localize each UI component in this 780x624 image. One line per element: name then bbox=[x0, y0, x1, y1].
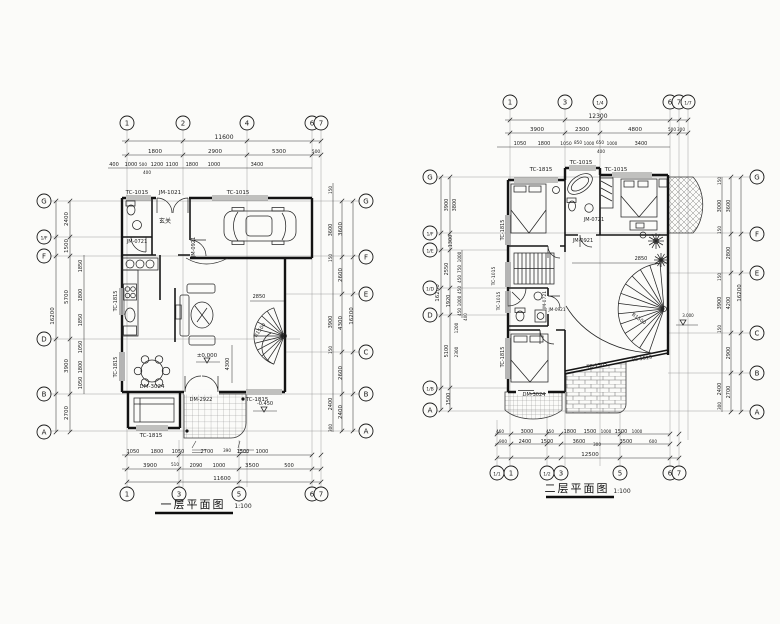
dim-label: TC-1015 bbox=[226, 190, 250, 196]
dim-label: DM-3024 bbox=[140, 384, 165, 390]
grid-bubble-label: G bbox=[754, 173, 759, 181]
dim-label: 1050 bbox=[127, 449, 140, 455]
dim-label: 3900 bbox=[444, 199, 450, 212]
dim-label: 3400 bbox=[635, 141, 648, 147]
nightstand bbox=[659, 179, 667, 187]
dim-label: 2400 bbox=[717, 383, 723, 396]
dim-label: 150 bbox=[717, 325, 722, 333]
dim-label: 1300 bbox=[448, 235, 454, 248]
grid-bubble-label: 2 bbox=[181, 119, 185, 127]
spiral-stair-2 bbox=[618, 263, 666, 353]
cad-sheet: 1160018002900530050040010005001200110018… bbox=[0, 0, 780, 624]
dim-label: 2550 bbox=[444, 263, 450, 276]
dim-label: 1800 bbox=[564, 429, 577, 435]
dim-label: 2300 bbox=[575, 127, 589, 133]
dim-label: 1500 bbox=[446, 393, 452, 406]
dim-label: DM-2922 bbox=[190, 397, 213, 403]
grid-bubble-label: E bbox=[755, 269, 759, 277]
sink bbox=[133, 221, 142, 230]
floor-plan-drawing: 1160018002900530050040010005001200110018… bbox=[0, 0, 780, 624]
grid-bubble-label: A bbox=[42, 428, 47, 436]
dim-label: 300 bbox=[328, 424, 333, 432]
plan2-grid-bubbles: 131/4671/71/111/23567G1/F1/E1/DD1/BAGFEC… bbox=[423, 95, 764, 480]
grid-bubble-label: B bbox=[42, 390, 47, 398]
dim-label: 1800 bbox=[78, 361, 84, 374]
dim-label: 2850 bbox=[253, 294, 266, 300]
dim-label: 3500 bbox=[245, 463, 259, 469]
grid-bubble-label: 7 bbox=[319, 490, 323, 498]
dim-label: TC-1015 bbox=[496, 292, 502, 312]
grid-bubble-label: G bbox=[363, 197, 368, 205]
grid-bubble-label: 1 bbox=[508, 98, 512, 106]
bathtub bbox=[564, 169, 596, 198]
dim-label: 750 bbox=[457, 265, 462, 273]
dim-label: 4300 bbox=[338, 316, 344, 330]
grid-bubble-label: G bbox=[41, 197, 46, 205]
dim-label: 1050 bbox=[514, 141, 527, 147]
dim-label: 3900 bbox=[530, 127, 544, 133]
dim-label: 11600 bbox=[214, 134, 233, 141]
dim-label: JM-0921 bbox=[547, 307, 565, 312]
dim-label: 3600 bbox=[328, 224, 334, 237]
dim-label: TC-1815 bbox=[529, 167, 553, 173]
dim-label: 5100 bbox=[444, 345, 450, 358]
grid-bubble-label: 5 bbox=[618, 469, 622, 477]
window-tc1815-2 bbox=[514, 177, 558, 182]
dim-label: 2700 bbox=[726, 386, 732, 399]
plan2-title: 二层平面图 bbox=[545, 482, 610, 495]
dim-label: 1500 bbox=[64, 239, 70, 253]
dim-label: 1000 bbox=[125, 162, 138, 168]
dim-label: 1000 bbox=[607, 141, 618, 146]
dim-label: 150 bbox=[328, 186, 333, 194]
dim-label: TC-1815 bbox=[113, 291, 119, 313]
plan1-scale: 1:100 bbox=[234, 503, 251, 510]
dim-label: JM-1021 bbox=[158, 190, 181, 196]
dim-label: 4800 bbox=[628, 127, 642, 133]
dim-label: 1100 bbox=[166, 162, 179, 168]
dim-label: 玄关 bbox=[159, 217, 171, 225]
dim-label: JM-0721 bbox=[583, 217, 604, 223]
dim-label: 1000 bbox=[213, 463, 226, 469]
dim-label: 3900 bbox=[328, 316, 334, 329]
dim-label: 2600 bbox=[338, 268, 344, 282]
second-floor-plan: 1230039002300480050030010501800105085010… bbox=[423, 95, 764, 497]
first-floor-plan: 1160018002900530050040010005001200110018… bbox=[37, 116, 373, 513]
porch-column bbox=[241, 397, 244, 400]
dim-label: 16200 bbox=[737, 284, 743, 302]
car bbox=[224, 208, 296, 245]
toilet-2 bbox=[567, 198, 576, 211]
dim-label: 850 bbox=[574, 140, 582, 145]
plan2-scale: 1:100 bbox=[613, 488, 630, 495]
dim-label: 1920 bbox=[446, 295, 452, 308]
dim-label: 2700 bbox=[201, 449, 214, 455]
dim-label: 1800 bbox=[186, 162, 199, 168]
window-tc1815 bbox=[246, 389, 282, 394]
grid-bubble-label: A bbox=[755, 408, 760, 416]
plan1-grid-bubbles: 1246713567G1/FFDBAGFECBA bbox=[37, 116, 373, 501]
toilet bbox=[126, 201, 135, 215]
dim-label: 3000 bbox=[521, 429, 534, 435]
dim-label: 3400 bbox=[251, 162, 264, 168]
sink-2 bbox=[585, 204, 593, 212]
dim-label: 1000 bbox=[584, 141, 595, 146]
dim-label: 2900 bbox=[208, 149, 222, 155]
plan1-title: 一层平面图 bbox=[161, 498, 226, 511]
dim-label: 150 bbox=[717, 177, 722, 185]
washer bbox=[535, 310, 546, 322]
dim-label: 450 bbox=[457, 286, 462, 294]
dim-label: 400 bbox=[143, 170, 151, 175]
dim-label: -0.450 bbox=[257, 401, 273, 407]
dim-label: 1050 bbox=[78, 341, 84, 354]
grid-bubble-label: D bbox=[41, 335, 46, 343]
dim-label: 1200 bbox=[454, 322, 459, 333]
dim-label: 460 bbox=[496, 429, 504, 434]
grid-bubble-label: B bbox=[364, 390, 369, 398]
dim-label: TC-1015 bbox=[604, 167, 628, 173]
grid-bubble-label: 1/7 bbox=[684, 100, 691, 106]
dim-label: 300 bbox=[593, 442, 601, 447]
dim-label: 500 bbox=[284, 463, 294, 469]
side-table bbox=[553, 187, 560, 194]
dim-label: 5700 bbox=[64, 290, 70, 304]
dim-label: 1000 bbox=[601, 429, 612, 434]
dim-label: 400 bbox=[597, 149, 605, 154]
grid-bubble-label: 1/2 bbox=[543, 471, 550, 477]
shower bbox=[508, 288, 526, 306]
dim-label: 150 bbox=[717, 226, 722, 234]
dim-label: 1500 bbox=[584, 429, 597, 435]
grid-bubble-label: F bbox=[42, 252, 46, 260]
dim-label: 1050 bbox=[172, 449, 185, 455]
dim-label: 3900 bbox=[717, 297, 723, 310]
window-tc1815-left2 bbox=[119, 352, 124, 381]
dim-label: 400 bbox=[463, 313, 468, 321]
dim-label: TC-1815 bbox=[500, 347, 506, 369]
grid-bubble-label: 7 bbox=[319, 119, 323, 127]
grid-bubble-label: 1/4 bbox=[596, 100, 603, 106]
window-tc1015-left1 bbox=[505, 262, 510, 287]
dim-label: 12500 bbox=[581, 452, 599, 458]
dim-label: R1500 bbox=[630, 312, 647, 326]
toilet-3 bbox=[515, 308, 525, 321]
dim-label: 900 bbox=[499, 439, 507, 444]
window-tc1015-bath bbox=[569, 165, 596, 170]
dim-label: 2600 bbox=[338, 366, 344, 380]
dim-label: 4200 bbox=[726, 297, 732, 310]
balcony-top-right bbox=[668, 177, 703, 233]
dim-label: 150 bbox=[328, 346, 333, 354]
dim-label: 3.000 bbox=[682, 313, 694, 318]
dim-label: 300 bbox=[717, 402, 722, 410]
dim-label: 16200 bbox=[349, 307, 355, 325]
dim-label: 3800 bbox=[452, 199, 458, 212]
dim-label: TC-1815 bbox=[139, 433, 163, 439]
grid-bubble-label: 1/F bbox=[40, 235, 47, 241]
grid-bubble-label: 1/B bbox=[426, 386, 434, 392]
sofa-set bbox=[176, 284, 215, 345]
grid-bubble-label: 1 bbox=[509, 469, 513, 477]
dim-label: 16200 bbox=[50, 307, 56, 325]
dim-label: 2300 bbox=[454, 346, 459, 357]
dim-label: TC-1015 bbox=[125, 190, 149, 196]
grid-bubble-label: 3 bbox=[563, 98, 567, 106]
dim-label: 600 bbox=[649, 439, 657, 444]
dim-label: 150 bbox=[328, 254, 333, 262]
window-tc1815-room bbox=[136, 425, 168, 430]
dim-label: 11600 bbox=[213, 476, 231, 482]
dim-label: 5300 bbox=[272, 149, 286, 155]
dim-label: 2090 bbox=[190, 463, 203, 469]
dim-label: 3000 bbox=[717, 200, 723, 213]
kitchen-counter bbox=[122, 258, 158, 336]
bed-room1 bbox=[134, 398, 174, 422]
window-tc1015-bed2 bbox=[612, 172, 652, 177]
dim-label: JM-0921 bbox=[191, 237, 197, 258]
dim-label: 2700 bbox=[64, 406, 70, 420]
dim-label: 1800 bbox=[538, 141, 551, 147]
grid-bubble-label: B bbox=[755, 369, 760, 377]
dim-label: 1000 bbox=[457, 295, 462, 306]
dim-label: 3900 bbox=[143, 463, 157, 469]
bed-room3 bbox=[511, 334, 548, 382]
dim-label: TC-1015 bbox=[491, 267, 497, 287]
dim-label: JM-0921 bbox=[572, 238, 593, 244]
dim-label: 450 bbox=[457, 308, 462, 316]
grid-bubble-label: 5 bbox=[237, 490, 241, 498]
dim-label: 500 bbox=[139, 162, 147, 167]
dim-label: 3600 bbox=[726, 200, 732, 213]
dim-label: 1850 bbox=[78, 314, 84, 327]
dim-label: 2400 bbox=[519, 439, 532, 445]
dim-label: 650 bbox=[596, 140, 604, 145]
grid-bubble-label: 7 bbox=[677, 469, 681, 477]
dim-label: DM-3024 bbox=[523, 392, 546, 398]
dim-label: 510 bbox=[171, 462, 179, 467]
dim-label: TC-1815 bbox=[113, 357, 119, 379]
dim-label: 12300 bbox=[588, 113, 607, 120]
dim-label: 1500 bbox=[615, 429, 628, 435]
grid-bubble-label: D bbox=[427, 311, 432, 319]
dim-label: 1800 bbox=[148, 149, 162, 155]
dim-label: 2900 bbox=[726, 347, 732, 360]
grid-bubble-label: 1 bbox=[125, 119, 129, 127]
sink-3 bbox=[534, 292, 542, 300]
bed-master bbox=[511, 184, 546, 233]
dim-label: 450 bbox=[546, 429, 554, 434]
dining-table bbox=[134, 356, 170, 387]
grid-bubble-label: A bbox=[428, 406, 433, 414]
grid-bubble-label: 1/F bbox=[426, 231, 433, 237]
grid-bubble-label: 3 bbox=[559, 469, 563, 477]
dim-label: 390 bbox=[223, 448, 231, 453]
dim-label: JM-0721 bbox=[542, 291, 548, 310]
dim-label: 1000 bbox=[256, 449, 269, 455]
dim-label: 1850 bbox=[78, 260, 84, 273]
dim-label: 3600 bbox=[573, 439, 586, 445]
dim-label: 2850 bbox=[635, 256, 648, 262]
furniture-2 bbox=[508, 169, 686, 382]
grid-bubble-label: 1/1 bbox=[493, 471, 500, 477]
dim-label: 1050 bbox=[560, 141, 572, 147]
dim-label: 2400 bbox=[328, 398, 334, 411]
window-tc1015 bbox=[126, 195, 151, 200]
dim-label: JM-0721 bbox=[126, 239, 147, 245]
dim-label: 150 bbox=[717, 273, 722, 281]
plant-icon bbox=[654, 253, 668, 267]
dim-label: TC-1815 bbox=[500, 220, 506, 242]
grid-bubble-label: F bbox=[755, 230, 759, 238]
grid-bubble-label: E bbox=[364, 290, 368, 298]
grid-bubble-label: 1/E bbox=[426, 248, 433, 254]
grid-bubble-label: 1/D bbox=[426, 286, 434, 292]
porch-column bbox=[185, 429, 188, 432]
window-tc1015-garage bbox=[212, 195, 268, 200]
dim-label: 2400 bbox=[338, 405, 344, 419]
window-tc1815-stair bbox=[505, 215, 510, 245]
grid-bubble-label: 4 bbox=[245, 119, 250, 127]
dim-label: 2400 bbox=[64, 212, 70, 226]
grid-bubble-label: G bbox=[427, 173, 432, 181]
dim-label: 400 bbox=[109, 162, 119, 168]
grid-bubble-label: F bbox=[364, 253, 368, 261]
dim-label: TC-1515 bbox=[630, 355, 652, 364]
dim-label: 1050 bbox=[78, 377, 84, 390]
bed-guest bbox=[621, 179, 657, 217]
dim-label: 1000 bbox=[208, 162, 221, 168]
dim-label: ±0.000 bbox=[197, 353, 218, 359]
window-tc1815-bed3 bbox=[505, 338, 510, 379]
dim-label: 4300 bbox=[225, 358, 231, 371]
dim-label: 450 bbox=[457, 275, 462, 283]
doors bbox=[131, 195, 228, 394]
grid-bubble-label: C bbox=[364, 348, 369, 356]
grid-bubble-label: A bbox=[364, 427, 369, 435]
dim-label: 3600 bbox=[338, 222, 344, 236]
dim-label: 1800 bbox=[78, 289, 84, 302]
dim-label: TC-1015 bbox=[569, 160, 593, 166]
grid-bubble-label: 1 bbox=[125, 490, 129, 498]
dim-label: 1000 bbox=[457, 251, 462, 262]
dim-label: 1200 bbox=[151, 162, 164, 168]
wardrobe bbox=[600, 178, 613, 208]
dim-label: 1500 bbox=[237, 449, 250, 455]
dim-label: 1800 bbox=[151, 449, 164, 455]
dim-label: 3900 bbox=[64, 359, 70, 373]
grid-bubble-label: C bbox=[755, 329, 760, 337]
dim-label: 1000 bbox=[632, 429, 643, 434]
dim-label: 2800 bbox=[726, 247, 732, 260]
